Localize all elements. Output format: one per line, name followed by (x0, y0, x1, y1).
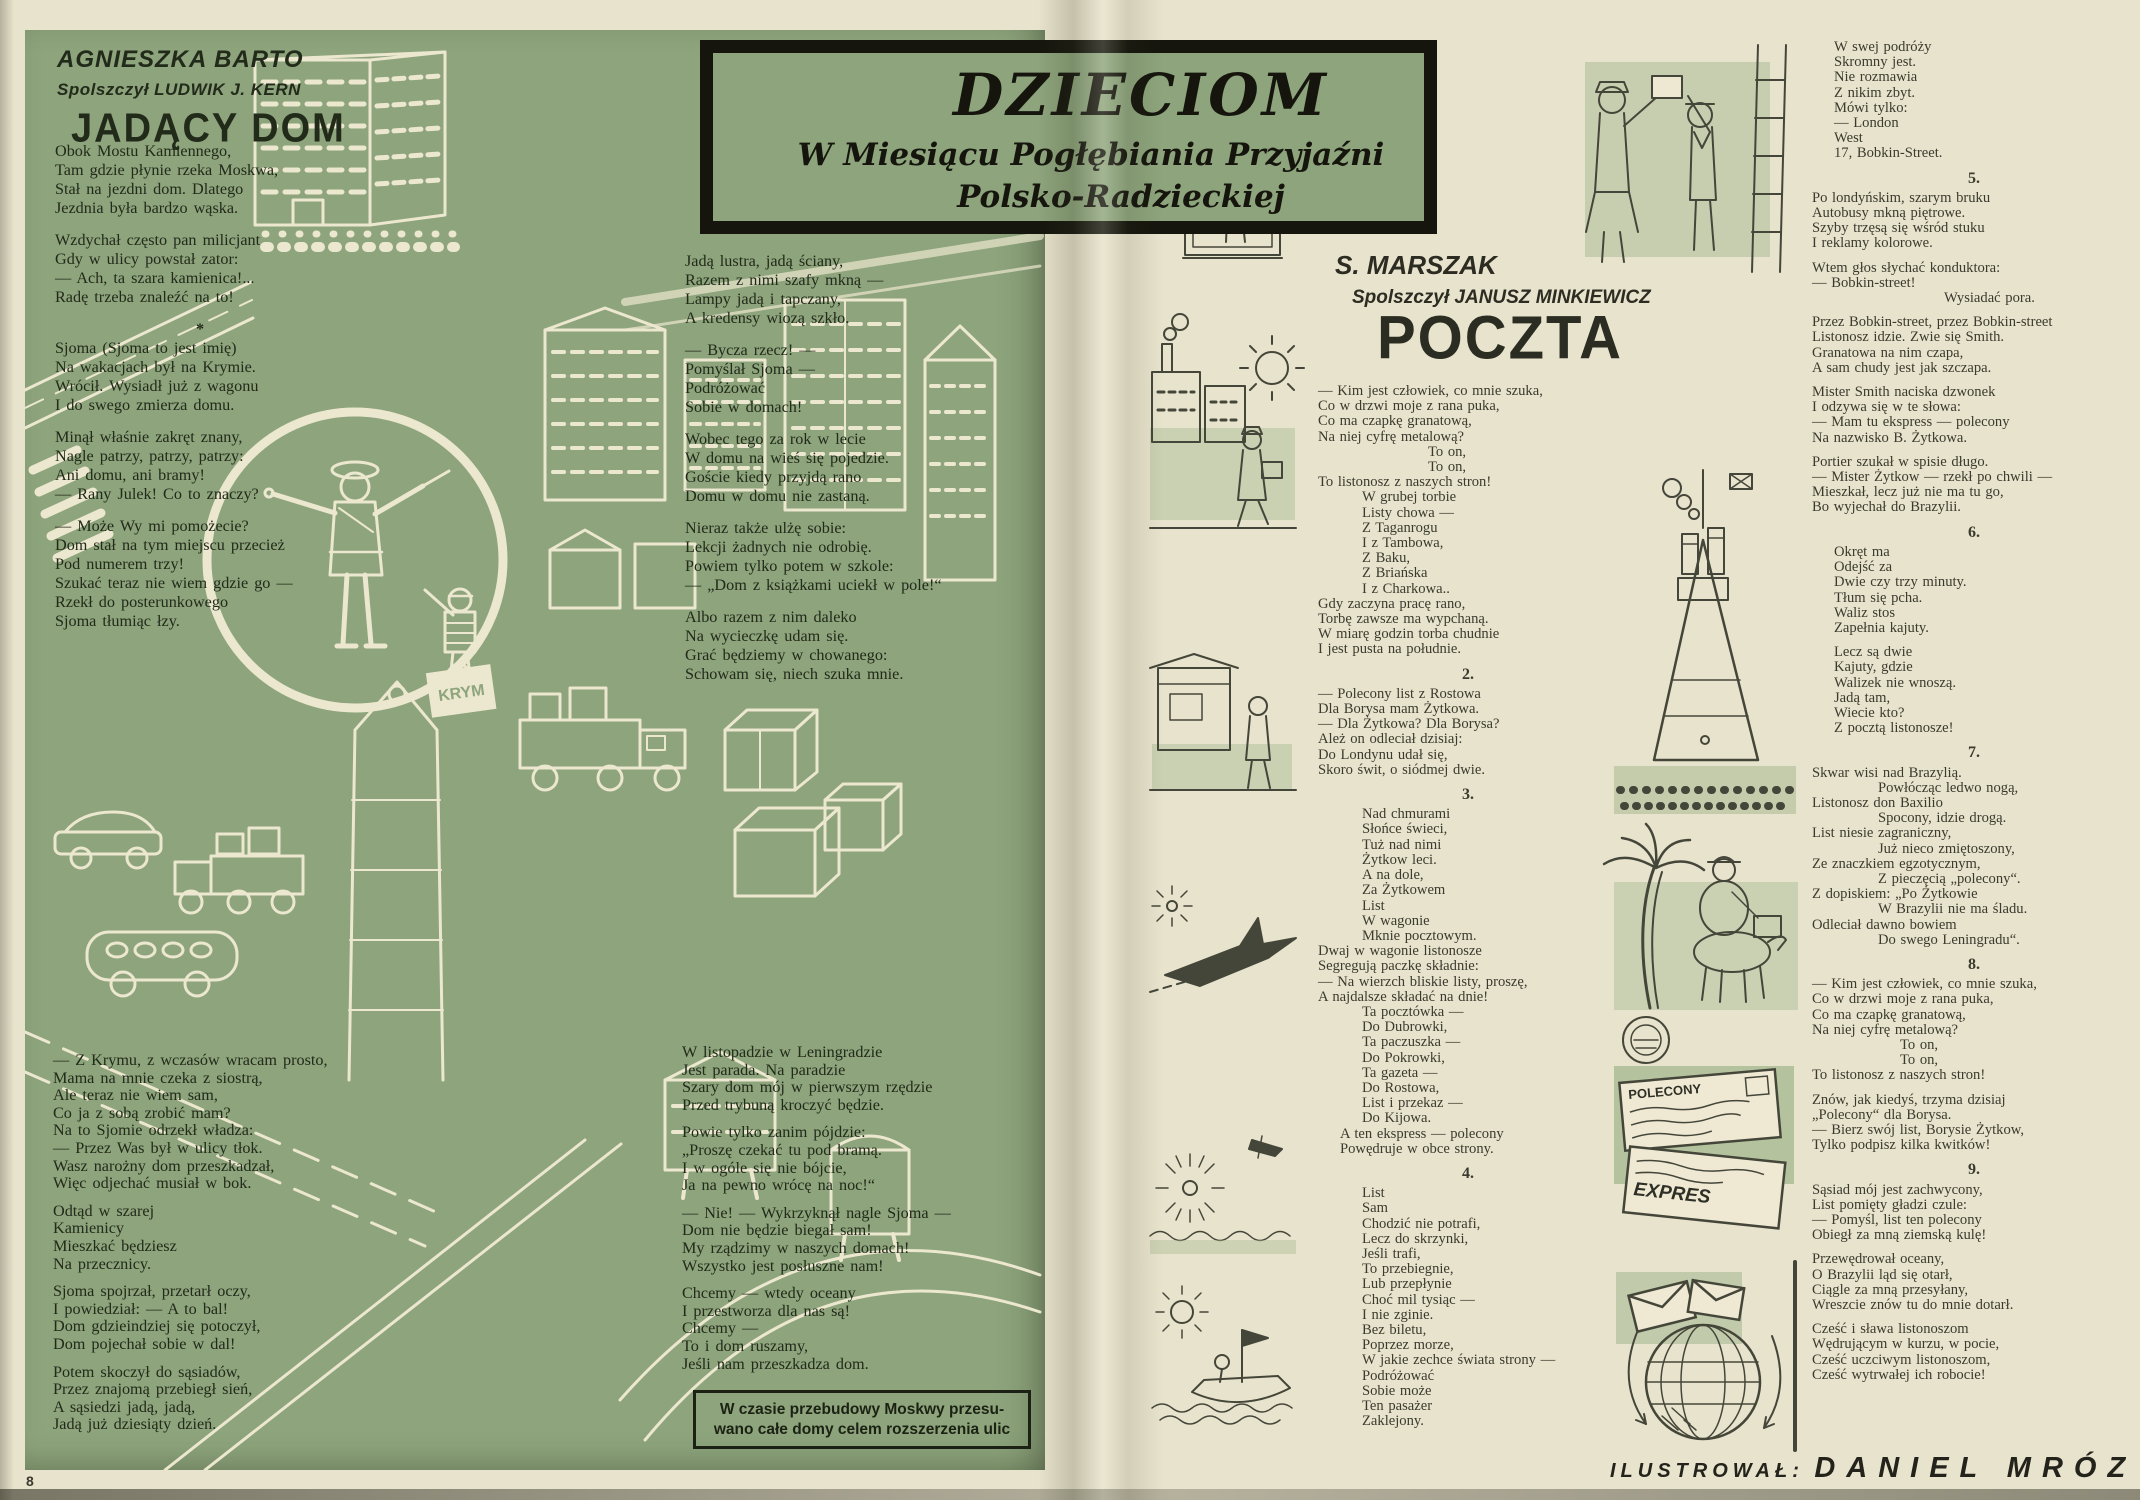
poem-line: Lecz do skrzynki, (1318, 1232, 1618, 1247)
poem-line: Na przecznicy. (53, 1256, 353, 1274)
poem-line: Z nikim zbyt. (1812, 86, 2136, 101)
poem-line: Pomyślał Sjoma — (685, 360, 1025, 379)
poem-line: „Polecony“ dla Borysa. (1812, 1108, 2136, 1123)
poem-line: My rządzimy w naszych domach! (682, 1240, 1027, 1258)
stanza: Po londyńskim, szarym brukuAutobusy mkną… (1812, 191, 2136, 252)
poem-line: Razem z nimi szafy mkną — (685, 271, 1025, 290)
poem-line: Sjoma (Sjoma to jest imię) (55, 339, 345, 358)
poem-line: Mister Smith naciska dzwonek (1812, 385, 2136, 400)
poem-line: Tylko podpisz kilka kwitków! (1812, 1138, 2136, 1153)
poem-line: Torbę zawsze ma wypchaną. (1318, 612, 1618, 627)
poem-line: Autobusy mkną piętrowe. (1812, 206, 2136, 221)
poem-line: Powłócząc ledwo nogą, (1812, 781, 2136, 796)
poem-line: Lampy jadą i tapczany, (685, 290, 1025, 309)
poem-line: A najdalsze składać na dnie! (1318, 990, 1618, 1005)
stanza: Cześć i sława listonoszomWędrującym w ku… (1812, 1322, 2136, 1383)
poem-line: Sobie może (1318, 1384, 1618, 1399)
poem-line: 17, Bobkin-Street. (1812, 146, 2136, 161)
poem-line: List pomięty gładzi czule: (1812, 1198, 2136, 1213)
poem-line: I reklamy kolorowe. (1812, 236, 2136, 251)
poem-line: Obok Mostu Kamiennego, (55, 142, 345, 161)
poem-line: — Pomyśl, list ten polecony (1812, 1213, 2136, 1228)
stanza: ListSamChodzić nie potrafi,Lecz do skrzy… (1318, 1186, 1618, 1429)
editor-footnote: W czasie przebudowy Moskwy przesu- wano … (693, 1390, 1031, 1449)
poem-line: Co ma czapkę granatową, (1812, 1008, 2136, 1023)
poem-line: Stał na jezdni dom. Dlatego (55, 180, 345, 199)
poem-line: Już nieco zmiętoszony, (1812, 842, 2136, 857)
poem-line: Listonosz idzie. Zwie się Smith. (1812, 330, 2136, 345)
poem-line: Słońce świeci, (1318, 822, 1618, 837)
stanza: Powie tylko zanim pójdzie:„Proszę czekać… (682, 1124, 1027, 1194)
poem-line: — Na wierzch bliskie listy, proszę, (1318, 975, 1618, 990)
poem-line: Schowam się, niech szuka mnie. (685, 665, 1025, 684)
stanza: Sąsiad mój jest zachwycony,List pomięty … (1812, 1183, 2136, 1244)
poem-line: Na wycieczkę udam się. (685, 627, 1025, 646)
poem-line: Jadą już dziesiąty dzień. (53, 1416, 353, 1434)
section-number: 2. (1318, 667, 1618, 682)
stanza: Nieraz także ulżę sobie:Lekcji żadnych n… (685, 519, 1025, 595)
poem-line: Sjoma spojrzał, przetarł oczy, (53, 1283, 353, 1301)
poem-line: Sąsiad mój jest zachwycony, (1812, 1183, 2136, 1198)
poem-line: Do Rostowa, (1318, 1081, 1618, 1096)
poem-line: Ale teraz nie wiem sam, (53, 1087, 353, 1105)
poem-line: Do Kijowa. (1318, 1111, 1618, 1126)
poem-line: Ta pocztówka — (1318, 1005, 1618, 1020)
poem-line: Goście kiedy przyjdą rano (685, 468, 1025, 487)
poem-line: Spocony, idzie drogą. (1812, 811, 2136, 826)
poem-line: Kajuty, gdzie (1812, 660, 2136, 675)
poem-line: Co w drzwi moje z rana puka, (1812, 992, 2136, 1007)
poem-line: Jest parada. Na paradzie (682, 1062, 1027, 1080)
poem-line: Dom stał na tym miejscu przecież (55, 536, 345, 555)
poem-line: Podróżować (1318, 1369, 1618, 1384)
poem-line: Portier szukał w spisie długo. (1812, 455, 2136, 470)
stanza: Nad chmuramiSłońce świeci,Tuż nad nimiŻy… (1318, 807, 1618, 1157)
poem-line: Wysiadać pora. (1812, 291, 2136, 306)
illustrator-credit: ILUSTROWAŁ: DANIEL MRÓZ (1610, 1452, 2120, 1485)
poem-line: Dwie czy trzy minuty. (1812, 575, 2136, 590)
poem-line: Jeśli nam przeszkadza dom. (682, 1356, 1027, 1374)
stanza: — Z Krymu, z wczasów wracam prosto,Mama … (53, 1052, 353, 1193)
poem-line: To on, (1812, 1053, 2136, 1068)
poem-line: Powie tylko zanim pójdzie: (682, 1124, 1027, 1142)
poem-line: Żytkow leci. (1318, 853, 1618, 868)
dzieciom-banner: DZIECIOM W Miesiącu Pogłębiania Przyjaźn… (700, 40, 1437, 234)
right-poem-title: POCZTA (1350, 303, 1650, 373)
poem-line: — Kim jest człowiek, co mnie szuka, (1812, 977, 2136, 992)
poem-line: Listy chowa — (1318, 506, 1618, 521)
poem-line: — Bycza rzecz! — (685, 341, 1025, 360)
poem-line: Do Pokrowki, (1318, 1051, 1618, 1066)
footnote-line: W czasie przebudowy Moskwy przesu- (702, 1400, 1022, 1420)
poem-line: Cześć uczciwym listonoszom, (1812, 1353, 2136, 1368)
poem-line: Z pieczęcią „polecony“. (1812, 872, 2136, 887)
poem-line: — Mam tu ekspress — polecony (1812, 415, 2136, 430)
poem-line: Więc odjechać musiał w bok. (53, 1175, 353, 1193)
poem-line: Mknie pocztowym. (1318, 929, 1618, 944)
poem-line: Ja na pewno wrócę na noc!“ (682, 1177, 1027, 1195)
stanza: Przez Bobkin-street, przez Bobkin-street… (1812, 315, 2136, 376)
stanza: W listopadzie w LeningradzieJest parada.… (682, 1044, 1027, 1114)
poem-line: Odleciał dawno bowiem (1812, 918, 2136, 933)
poem-line: Odtąd w szarej (53, 1203, 353, 1221)
poem-line: — London (1812, 116, 2136, 131)
poem-line: — Nie! — Wykrzyknął nagle Sjoma — (682, 1205, 1027, 1223)
poem-line: Nagle patrzy, patrzy, patrzy: (55, 447, 345, 466)
poem-line: Jadą lustra, jadą ściany, (685, 252, 1025, 271)
stanza: — Nie! — Wykrzyknął nagle Sjoma —Dom nie… (682, 1205, 1027, 1275)
stanza: Potem skoczył do sąsiadów,Przez znajomą … (53, 1364, 353, 1434)
poem-line: Okręt ma (1812, 545, 2136, 560)
poem-line: Przed trybuną kroczyć będzie. (682, 1097, 1027, 1115)
stanza: W swej podróżySkromny jest.Nie rozmawiaZ… (1812, 40, 2136, 162)
stanza: Portier szukał w spisie długo.— Mister Ż… (1812, 455, 2136, 516)
poem-line: Nad chmurami (1318, 807, 1618, 822)
poem-line: List i przekaz — (1318, 1096, 1618, 1111)
poem-line: Chodzić nie potrafi, (1318, 1217, 1618, 1232)
left-translator: Spolszczył LUDWIK J. KERN (57, 80, 301, 100)
poem-line: To on, (1318, 460, 1618, 475)
stanza: — Polecony list z RostowaDla Borysa mam … (1318, 687, 1618, 778)
poem-line: — Polecony list z Rostowa (1318, 687, 1618, 702)
poem-line: To przebiegnie, (1318, 1262, 1618, 1277)
stanza: Minął właśnie zakręt znany,Nagle patrzy,… (55, 428, 345, 504)
poem-line: Chcemy — (682, 1320, 1027, 1338)
stanza: Albo razem z nim dalekoNa wycieczkę udam… (685, 608, 1025, 684)
stanza: Skwar wisi nad Brazylią.Powłócząc ledwo … (1812, 766, 2136, 948)
poem-line: I w ogóle się nie bójcie, (682, 1160, 1027, 1178)
poem-line: W grubej torbie (1318, 490, 1618, 505)
poem-line: Dom gdzieindziej się potoczył, (53, 1318, 353, 1336)
poem-line: Co ja z sobą zrobić mam? (53, 1105, 353, 1123)
poem-line: I nie zginie. (1318, 1308, 1618, 1323)
section-number: 9. (1812, 1162, 2136, 1177)
poem-line: Choć mil tysiąc — (1318, 1293, 1618, 1308)
stanza: Chcemy — wtedy oceanyI przestworza dla n… (682, 1285, 1027, 1373)
poem-line: Do swego Leningradu“. (1812, 933, 2136, 948)
poem-line: Na wakacjach był na Krymie. (55, 358, 345, 377)
poem-line: Wobec tego za rok w lecie (685, 430, 1025, 449)
poem-line: Sjoma tłumiąc łzy. (55, 612, 345, 631)
poem-line: — Rany Julek! Co to znaczy? (55, 485, 345, 504)
poem-line: Minął właśnie zakręt znany, (55, 428, 345, 447)
poem-line: Do Dubrowki, (1318, 1020, 1618, 1035)
poem-line: Cześć i sława listonoszom (1812, 1322, 2136, 1337)
poem-line: Waliz stos (1812, 606, 2136, 621)
stanza: Jadą lustra, jadą ściany,Razem z nimi sz… (685, 252, 1025, 328)
stanza: Sjoma spojrzał, przetarł oczy,I powiedzi… (53, 1283, 353, 1353)
poem-line: A ten ekspress — polecony (1318, 1127, 1618, 1142)
poem-line: Lub przepłynie (1318, 1277, 1618, 1292)
section-number: 8. (1812, 957, 2136, 972)
poem-line: Szary dom mój w pierwszym rzędzie (682, 1079, 1027, 1097)
poem-line: Poprzez morze, (1318, 1338, 1618, 1353)
poem-line: W listopadzie w Leningradzie (682, 1044, 1027, 1062)
poem-line: I przestworza dla nas są! (682, 1303, 1027, 1321)
poem-line: Jeśli trafi, (1318, 1247, 1618, 1262)
poem-line: — Może Wy mi pomożecie? (55, 517, 345, 536)
poczta-column-b: W swej podróżySkromny jest.Nie rozmawiaZ… (1812, 40, 2136, 1392)
poem-line: O Brazylii ląd się otarł, (1812, 1268, 2136, 1283)
poem-line: „Proszę czekać tu pod bramą. (682, 1142, 1027, 1160)
poem-line: Ani domu, ani bramy! (55, 466, 345, 485)
poem-line: List (1318, 899, 1618, 914)
page-number: 8 (26, 1473, 34, 1489)
poem-line: A sam chudy jest jak szczapa. (1812, 361, 2136, 376)
poem-line: Sam (1318, 1201, 1618, 1216)
poem-line: — Bobkin-street! (1812, 276, 2136, 291)
poem-line: Na niej cyfrę metalową? (1318, 430, 1618, 445)
poem-line: Ta gazeta — (1318, 1066, 1618, 1081)
poem-line: Jadą tam, (1812, 691, 2136, 706)
poem-line: Skoro świt, o siódmej dwie. (1318, 763, 1618, 778)
poem-line: Ciągle za mną przesyłany, (1812, 1283, 2136, 1298)
poem-line: Dom pojechał sobie w dal! (53, 1336, 353, 1354)
poem-line: Gdy zaczyna pracę rano, (1318, 597, 1618, 612)
stanza: Wzdychał często pan milicjantGdy w ulicy… (55, 231, 345, 307)
poem-line: Grać będziemy w chowanego: (685, 646, 1025, 665)
right-author: S. MARSZAK (1335, 250, 1497, 281)
poem-line: Dla Borysa mam Żytkowa. (1318, 702, 1618, 717)
stanza-separator: * (55, 320, 345, 339)
section-number: 3. (1318, 787, 1618, 802)
poem-line: Granatowa na nim czapa, (1812, 346, 2136, 361)
poem-line: List (1318, 1186, 1618, 1201)
poem-line: Skwar wisi nad Brazylią. (1812, 766, 2136, 781)
poem-line: Nie rozmawia (1812, 70, 2136, 85)
poem-line: To listonosz z naszych stron! (1318, 475, 1618, 490)
poem-line: I odzywa się w te słowa: (1812, 400, 2136, 415)
poczta-column-a: — Kim jest człowiek, co mnie szuka,Co w … (1318, 384, 1618, 1438)
magazine-spread: KRYM AGNIESZKA BARTO Spolszczył LUDWIK J… (0, 0, 2140, 1500)
poem-line: Z Taganrogu (1318, 521, 1618, 536)
poem-line: Bez biletu, (1318, 1323, 1618, 1338)
poem-line: — „Dom z książkami uciekł w pole!“ (685, 576, 1025, 595)
poem-line: Pod numerem trzy! (55, 555, 345, 574)
poem-line: Mieszkać będziesz (53, 1238, 353, 1256)
poem-line: A na dole, (1318, 868, 1618, 883)
poem-line: W jakie zechce świata strony — (1318, 1353, 1618, 1368)
poem-line: Wrócił. Wysiadł już z wagonu (55, 377, 345, 396)
poem-line: Za Żytkowem (1318, 883, 1618, 898)
poem-line: Mówi tylko: (1812, 101, 2136, 116)
poem-line: West (1812, 131, 2136, 146)
poem-line: Listonosz don Baxilio (1812, 796, 2136, 811)
poem-line: Ależ on odleciał dzisiaj: (1318, 732, 1618, 747)
poem-line: Albo razem z nim daleko (685, 608, 1025, 627)
stanza: Mister Smith naciska dzwonekI odzywa się… (1812, 385, 2136, 446)
poem-line: Mieszkał, lecz już nie ma tu go, (1812, 485, 2136, 500)
poem-line: Obiegł za mną ziemską kulę! (1812, 1228, 2136, 1243)
poem-line: W domu na wieś się pojedzie. (685, 449, 1025, 468)
poem-line: Mama na mnie czeka z siostrą, (53, 1070, 353, 1088)
poem-line: Tuż nad nimi (1318, 838, 1618, 853)
poem-line: Przez Bobkin-street, przez Bobkin-street (1812, 315, 2136, 330)
section-number: 7. (1812, 745, 2136, 760)
illustrator-credit-name: DANIEL MRÓZ (1814, 1452, 2136, 1484)
poem-line: Co ma czapkę granatową, (1318, 414, 1618, 429)
poem-line: — Kim jest człowiek, co mnie szuka, (1318, 384, 1618, 399)
poem-line: Ten pasażer (1318, 1399, 1618, 1414)
stanza: Lecz są dwieKajuty, gdzieWalizek nie wno… (1812, 645, 2136, 736)
poem-line: To on, (1812, 1038, 2136, 1053)
poem-line: Cześć wytrwałej ich robocie! (1812, 1368, 2136, 1383)
poem-line: Domu w domu nie zastaną. (685, 487, 1025, 506)
poem-line: Bo wyjechał do Brazylii. (1812, 500, 2136, 515)
poem-line: Z pocztą listonosze! (1812, 721, 2136, 736)
footnote-line: wano całe domy celem rozszerzenia ulic (702, 1420, 1022, 1440)
banner-subtitle-1: W Miesiącu Pogłębiania Przyjaźni (758, 137, 1424, 173)
poem-line: I z Tambowa, (1318, 536, 1618, 551)
poem-line: — Ach, ta szara kamienica!... (55, 269, 345, 288)
poem-line: — Mister Żytkow — rzekł po chwili — (1812, 470, 2136, 485)
poem-line: Skromny jest. (1812, 55, 2136, 70)
poem-line: Kamienicy (53, 1220, 353, 1238)
poem-line: Na to Sjomie odrzekł władza: (53, 1122, 353, 1140)
poem-line: Z dopiskiem: „Po Żytkowie (1812, 887, 2136, 902)
stanza: Odtąd w szarejKamienicyMieszkać będziesz… (53, 1203, 353, 1273)
poem-line: Chcemy — wtedy oceany (682, 1285, 1027, 1303)
poem-line: To on, (1318, 445, 1618, 460)
poem-line: A kredensy wiozą szkło. (685, 309, 1025, 328)
poem-line: Przewędrował oceany, (1812, 1252, 2136, 1267)
poem-line: To listonosz z naszych stron! (1812, 1068, 2136, 1083)
poem-line: Tam gdzie płynie rzeka Moskwa, (55, 161, 345, 180)
poem-line: Wędrującym w kurzu, w pocie, (1812, 1337, 2136, 1352)
poem-line: Na nazwisko B. Żytkowa. (1812, 431, 2136, 446)
poem-line: Przez znajomą przebiegł sień, (53, 1381, 353, 1399)
poem-line: — Przez Was był w ulicy tłok. (53, 1140, 353, 1158)
poem-line: A sąsiedzi jadą, jadą, (53, 1399, 353, 1417)
poem-line: Szyby trzęsą się wśród stuku (1812, 221, 2136, 236)
poem-line: I z Charkowa.. (1318, 582, 1618, 597)
poem-line: Segregują paczkę składnie: (1318, 959, 1618, 974)
poem-line: To i dom ruszamy, (682, 1338, 1027, 1356)
poem-line: I powiedział: — A to bal! (53, 1301, 353, 1319)
stanza: — Bycza rzecz! —Pomyślał Sjoma —Podróżow… (685, 341, 1025, 417)
poem-line: Dwaj w wagonie listonosze (1318, 944, 1618, 959)
section-number: 6. (1812, 525, 2136, 540)
poem-line: Z Baku, (1318, 551, 1618, 566)
poem-line: — Dla Żytkowa? Dla Borysa? (1318, 717, 1618, 732)
poem-line: Tłum się pcha. (1812, 591, 2136, 606)
poem-line: Ze znaczkiem egzotycznym, (1812, 857, 2136, 872)
stanza: Wobec tego za rok w lecieW domu na wieś … (685, 430, 1025, 506)
poem-line: Z Briańska (1318, 566, 1618, 581)
poem-line: Wzdychał często pan milicjant (55, 231, 345, 250)
poem-line: Wszystko jest posłuszne nam! (682, 1258, 1027, 1276)
poem-line: Potem skoczył do sąsiadów, (53, 1364, 353, 1382)
poem-line: Wtem głos słychać konduktora: (1812, 261, 2136, 276)
poem-line: Co w drzwi moje z rana puka, (1318, 399, 1618, 414)
poem-line: Gdy w ulicy powstał zator: (55, 250, 345, 269)
poem-line: Walizek nie wnoszą. (1812, 676, 2136, 691)
left-column1-lower: — Z Krymu, z wczasów wracam prosto,Mama … (53, 1052, 353, 1444)
poem-line: Wasz narożny dom przeszkadzał, (53, 1158, 353, 1176)
poem-line: Znów, jak kiedyś, trzyma dzisiaj (1812, 1093, 2136, 1108)
poem-line: Zapełnia kajuty. (1812, 621, 2136, 636)
poem-line: W swej podróży (1812, 40, 2136, 55)
banner-subtitle-2: Polsko-Radzieckiej (818, 179, 1424, 215)
section-number: 5. (1812, 171, 2136, 186)
left-column2-upper: Jadą lustra, jadą ściany,Razem z nimi sz… (685, 252, 1025, 697)
left-column2-lower: W listopadzie w LeningradzieJest parada.… (682, 1044, 1027, 1383)
poem-line: W wagonie (1318, 914, 1618, 929)
poem-line: Sobie w domach! (685, 398, 1025, 417)
poem-line: Do Londynu udał się, (1318, 748, 1618, 763)
stanza: Okręt maOdejść zaDwie czy trzy minuty.Tł… (1812, 545, 2136, 636)
poem-line: Ta paczuszka — (1318, 1035, 1618, 1050)
left-author: AGNIESZKA BARTO (57, 46, 304, 74)
poem-line: Zaklejony. (1318, 1414, 1618, 1429)
poem-line: Podróżować (685, 379, 1025, 398)
poem-line: Lekcji żadnych nie odrobię. (685, 538, 1025, 557)
poem-line: Wiecie kto? (1812, 706, 2136, 721)
poem-line: Lecz są dwie (1812, 645, 2136, 660)
poem-line: Szukać teraz nie wiem gdzie go — (55, 574, 345, 593)
poem-line: W miarę godzin torba chudnie (1318, 627, 1618, 642)
poem-line: — Z Krymu, z wczasów wracam prosto, (53, 1052, 353, 1070)
poem-line: Po londyńskim, szarym bruku (1812, 191, 2136, 206)
poem-line: W Brazylii nie ma śladu. (1812, 902, 2136, 917)
poem-line: I do swego zmierza domu. (55, 396, 345, 415)
poem-line: List niesie zagraniczny, (1812, 826, 2136, 841)
poem-line: Dom nie będzie biegał sam! (682, 1222, 1027, 1240)
illustrator-credit-label: ILUSTROWAŁ: (1610, 1460, 1804, 1482)
poem-line: Rzekł do posterunkowego (55, 593, 345, 612)
stanza: Sjoma (Sjoma to jest imię)Na wakacjach b… (55, 339, 345, 415)
stanza: Przewędrował oceany,O Brazylii ląd się o… (1812, 1252, 2136, 1313)
poem-line: Powiem tylko potem w szkole: (685, 557, 1025, 576)
stanza: Wtem głos słychać konduktora:— Bobkin-st… (1812, 261, 2136, 307)
poem-line: Nieraz także ulżę sobie: (685, 519, 1025, 538)
stanza: Obok Mostu Kamiennego,Tam gdzie płynie r… (55, 142, 345, 218)
banner-title: DZIECIOM (713, 61, 1424, 129)
poem-line: — Bierz swój list, Borysie Żytkow, (1812, 1123, 2136, 1138)
stanza: — Może Wy mi pomożecie?Dom stał na tym m… (55, 517, 345, 631)
poem-line: Wreszcie znów tu do mnie dotarł. (1812, 1298, 2136, 1313)
stanza: Znów, jak kiedyś, trzyma dzisiaj„Polecon… (1812, 1093, 2136, 1154)
section-number: 4. (1318, 1166, 1618, 1181)
poem-line: I jest pusta na południe. (1318, 642, 1618, 657)
stanza: — Kim jest człowiek, co mnie szuka,Co w … (1812, 977, 2136, 1083)
poem-line: Odejść za (1812, 560, 2136, 575)
poem-line: Radę trzeba znaleźć na to! (55, 288, 345, 307)
poem-line: Na niej cyfrę metalową? (1812, 1023, 2136, 1038)
poem-line: Jezdnia była bardzo wąska. (55, 199, 345, 218)
left-column1-upper: Obok Mostu Kamiennego,Tam gdzie płynie r… (55, 142, 345, 644)
poem-line: Powędruje w obce strony. (1318, 1142, 1618, 1157)
stanza: — Kim jest człowiek, co mnie szuka,Co w … (1318, 384, 1618, 658)
